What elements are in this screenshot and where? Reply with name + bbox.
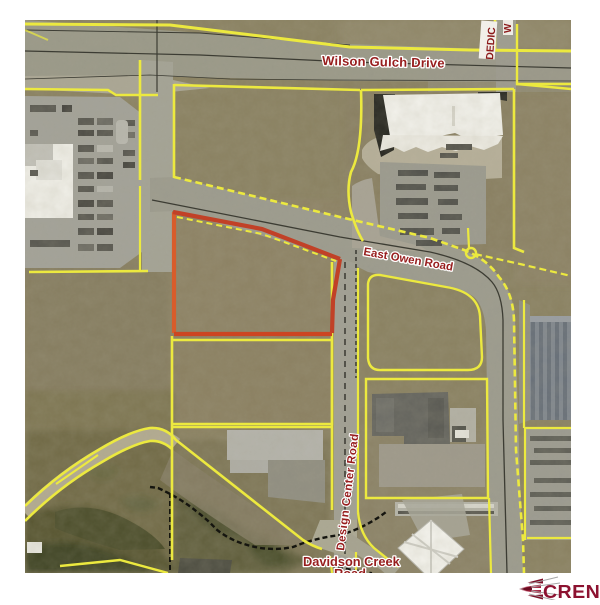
svg-text:W: W (503, 23, 514, 33)
svg-text:CREN: CREN (543, 582, 600, 600)
svg-text:Wilson Gulch Drive: Wilson Gulch Drive (322, 53, 445, 71)
svg-text:DEDIC: DEDIC (484, 26, 498, 60)
